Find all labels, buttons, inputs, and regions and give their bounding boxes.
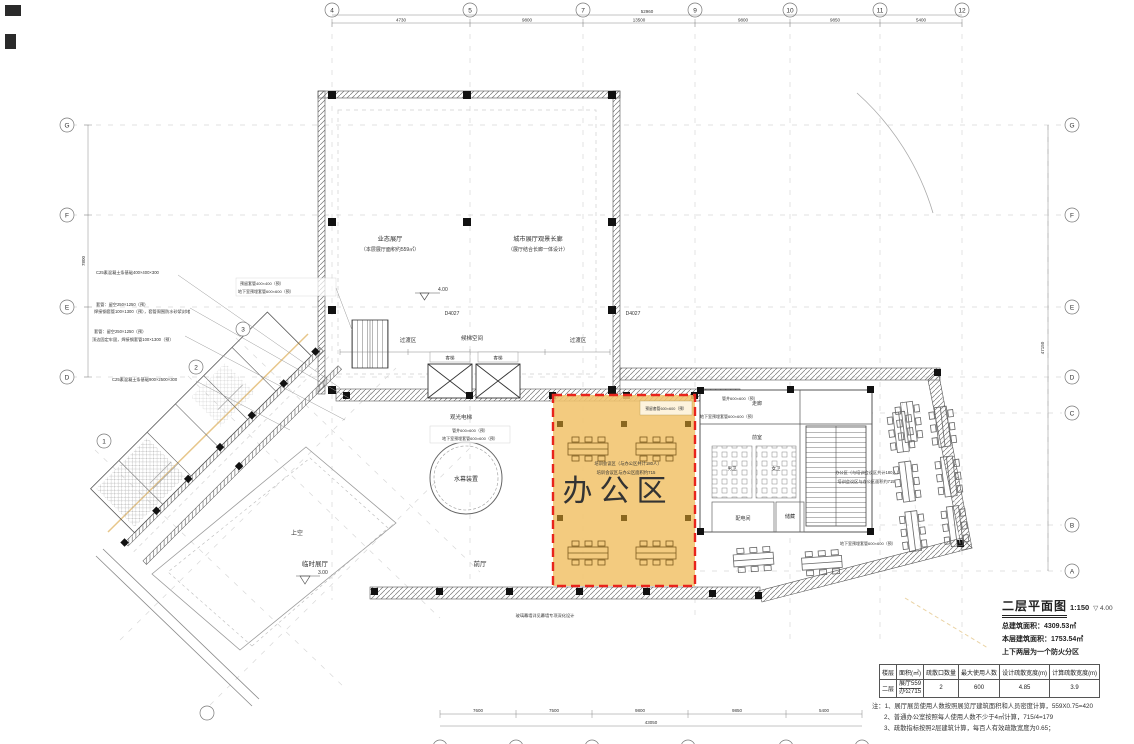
grid-label: 7 <box>581 8 585 15</box>
table-header: 楼层 <box>880 665 897 680</box>
room-label-female-wc: 女卫 <box>772 465 781 472</box>
annotation-center-1: 地下室预埋套管600×600（预） <box>442 435 498 441</box>
dim-top-total: 52960 <box>641 9 654 14</box>
corner-mark-1 <box>5 5 21 16</box>
desk-cluster <box>899 510 928 553</box>
table-header: 疏散口数量 <box>924 665 959 680</box>
dim-seg: 9800 <box>635 708 646 713</box>
grid-label: C <box>1070 411 1075 418</box>
site-arc <box>857 93 933 213</box>
note-line: 3、疏散指标按照2层建筑计算，每百人有效疏散宽度为0.65； <box>872 723 1134 734</box>
annotation-block-0: 预留套管400×400（预） <box>240 280 284 286</box>
notes-block: 注：1、展厅展览使用人数按照展览厅建筑面积和人员密度计算，559X0.75=42… <box>872 701 1134 734</box>
room-label-front-room: 前室 <box>752 434 762 441</box>
annotation-highlight-top: 预留套管600×600（预） <box>645 406 686 411</box>
table-header: 最大使用人数 <box>959 665 1000 680</box>
grid-bubble-unlabeled <box>200 706 214 720</box>
dim-seg: 5400 <box>819 708 830 713</box>
grid-label: B <box>1070 523 1074 530</box>
desk-cluster <box>887 411 916 454</box>
office-right-note-1: 办公区（与培训会议区共计180人） <box>835 469 901 476</box>
room-label-exhibition: 业态展厅 <box>378 235 403 243</box>
corner-mark-2 <box>5 34 16 49</box>
annotation-right-mid: 地下室预埋套管600×600（预） <box>840 540 896 546</box>
cell-floor: 二层 <box>880 680 897 698</box>
annotation-left-5: C25素混凝土条基础900×2500×300 <box>112 376 178 383</box>
highlight-note-1: 培训会议区（与办公区共计180人） <box>594 460 661 467</box>
dim-seg: 9850 <box>830 18 841 23</box>
dim-seg: 9800 <box>738 18 749 23</box>
table-header: 面积(㎡) <box>897 665 924 680</box>
lift-label-right: 客梯 <box>494 355 503 362</box>
fire-zone-line: 上下两层为一个防火分区 <box>1002 647 1132 657</box>
grid-label: D <box>1070 375 1075 382</box>
table-header: 设计疏散宽度(m) <box>1000 665 1050 680</box>
dim-seg: 7500 <box>549 708 560 713</box>
dim-seg: 9800 <box>522 18 533 23</box>
grid-label: 2 <box>194 365 198 372</box>
grid-label: 11 <box>877 8 884 15</box>
grid-label: F <box>65 213 69 220</box>
annotation-left-4: 顶边固定牢固，焊接钢套管100×1300（预） <box>92 336 174 343</box>
grid-label: D <box>65 375 70 382</box>
dim-bottom-total: 43050 <box>645 720 658 725</box>
room-label-water-curtain: 水幕装置 <box>454 475 478 483</box>
dim-seg: 9850 <box>732 708 743 713</box>
door-tag-right: D4027 <box>626 311 641 317</box>
note-line: 注：1、展厅展览使用人数按照展览厅建筑面积和人员密度计算，559X0.75=42… <box>872 701 1134 712</box>
lift-label-left: 客梯 <box>446 355 455 362</box>
desk-cluster <box>733 546 775 573</box>
dim-right-side: 47150 <box>1040 341 1045 354</box>
grid-label: G <box>64 123 69 130</box>
cell-area-hall: 展厅559 <box>899 681 921 689</box>
grid-label: 5 <box>468 8 472 15</box>
annotation-left-0: C25素混凝土条基础400×400×300 <box>96 269 160 276</box>
grid-label: F <box>1070 213 1074 220</box>
room-label-transition-right: 过渡区 <box>570 336 587 344</box>
title-elevation: ▽ 4.00 <box>1093 605 1112 612</box>
room-label-front-hall: 前厅 <box>474 559 488 568</box>
elevation-mark-main <box>420 293 429 300</box>
floorplan-page: 业态展厅 （本层展厅面积约559㎡） 城市展厅观景长廊 （展厅结合长廊一体设计）… <box>0 0 1134 744</box>
dim-seg: 4730 <box>396 18 407 23</box>
room-label-temp-exhibition: 临时展厅 <box>302 559 329 568</box>
room-label-void: 上空 <box>291 529 303 537</box>
annotation-left-1: 套管：留空250×1250（预） <box>96 301 148 308</box>
total-area-line: 总建筑面积：4309.53㎡ <box>1002 621 1132 631</box>
left-wing <box>79 304 342 567</box>
grid-label: 12 <box>958 8 966 15</box>
room-label-storage: 储藏 <box>785 513 795 520</box>
cell-people: 600 <box>959 680 1000 698</box>
dim-left-side: 7800 <box>81 255 86 266</box>
grid-label: G <box>1069 123 1074 130</box>
grid-label: 4 <box>330 8 334 15</box>
elevation-value-temp: 3.00 <box>318 570 328 576</box>
highlight-office-zone[interactable]: 预留套管600×600（预） 培训会议区（与办公区共计180人） 培训会议区与办… <box>553 395 695 586</box>
title-block: 二层平面图1:150▽ 4.00 总建筑面积：4309.53㎡ 本层建筑面积：1… <box>1002 597 1132 657</box>
cell-exits: 2 <box>924 680 959 698</box>
evacuation-table: 楼层 面积(㎡) 疏散口数量 最大使用人数 设计疏散宽度(m) 计算疏散宽度(m… <box>879 664 1100 698</box>
room-label-power-room: 配电间 <box>735 515 750 522</box>
floorplan-canvas: 业态展厅 （本层展厅面积约559㎡） 城市展厅观景长廊 （展厅结合长廊一体设计）… <box>0 0 1134 744</box>
note-line: 2、普通办公室按照每人使用人数不少于4㎡计算，715/4=179 <box>872 712 1134 723</box>
grid-label: A <box>1070 569 1075 576</box>
grid-label: 3 <box>241 327 245 334</box>
cell-area: 展厅559 办公715 <box>897 680 924 698</box>
dim-seg: 5400 <box>916 18 927 23</box>
grid-label: E <box>1070 305 1075 312</box>
annotation-block-1: 地下室预埋套管600×600（预） <box>238 288 294 294</box>
drawing-scale: 1:150 <box>1070 603 1089 612</box>
cell-area-office: 办公715 <box>899 689 921 696</box>
bottom-left-edge <box>96 549 259 706</box>
room-label-exhibition-sub: （本层展厅面积约559㎡） <box>361 246 419 253</box>
desk-cluster <box>893 460 922 503</box>
cell-design-width: 4.85 <box>1000 680 1050 698</box>
grid-label: 9 <box>693 8 697 15</box>
dim-seg: 7600 <box>473 708 484 713</box>
annotation-left-3: 套管：留空250×1250（预） <box>94 328 146 335</box>
room-label-gallery-sub: （展厅结合长廊一体设计） <box>508 246 568 253</box>
cell-calc-width: 3.9 <box>1050 680 1100 698</box>
dim-seg: 13500 <box>633 18 646 23</box>
room-label-corridor: 走廊 <box>752 400 762 407</box>
annotation-bottom: 玻璃幕墙详见幕墙专项深化设计 <box>516 612 575 619</box>
drawing-title: 二层平面图 <box>1002 597 1067 618</box>
annotation-center-0: 管井600×600（预） <box>452 427 488 433</box>
site-boundary-line-2 <box>905 598 988 648</box>
door-tag-left: D4027 <box>445 311 460 317</box>
office-right-note-2: 培训会议区与办公区面积约715 <box>837 478 895 485</box>
table-header: 计算疏散宽度(m) <box>1050 665 1100 680</box>
annotation-right-top-0: 管井600×600（预） <box>722 395 758 401</box>
table-row: 二层 展厅559 办公715 2 600 4.85 3.9 <box>880 680 1100 698</box>
elevation-value-main: 4.00 <box>438 287 448 293</box>
room-label-transition-left: 过渡区 <box>400 336 417 344</box>
floor-area-line: 本层建筑面积：1753.54㎡ <box>1002 634 1132 644</box>
highlight-label: 办公区 <box>563 475 674 508</box>
grid-label: 1 <box>102 439 106 446</box>
title-elevation-value: 4.00 <box>1100 605 1113 612</box>
room-label-gallery: 城市展厅观景长廊 <box>513 235 563 243</box>
grid-label: E <box>65 305 70 312</box>
annotation-left-2: 焊接钢套管100×1300（预），套管周围防水砂浆封堵 <box>94 308 191 315</box>
office-desks-right <box>885 396 970 563</box>
exhibition-block: 业态展厅 （本层展厅面积约559㎡） 城市展厅观景长廊 （展厅结合长廊一体设计）… <box>318 91 740 401</box>
annotation-right-top-1: 地下室预埋套管600×600（预） <box>700 413 756 419</box>
grid-label: 10 <box>786 8 794 15</box>
room-label-sightseeing-elevator: 观光电梯 <box>450 413 473 421</box>
room-label-elevator-lobby: 候梯空间 <box>461 334 483 342</box>
